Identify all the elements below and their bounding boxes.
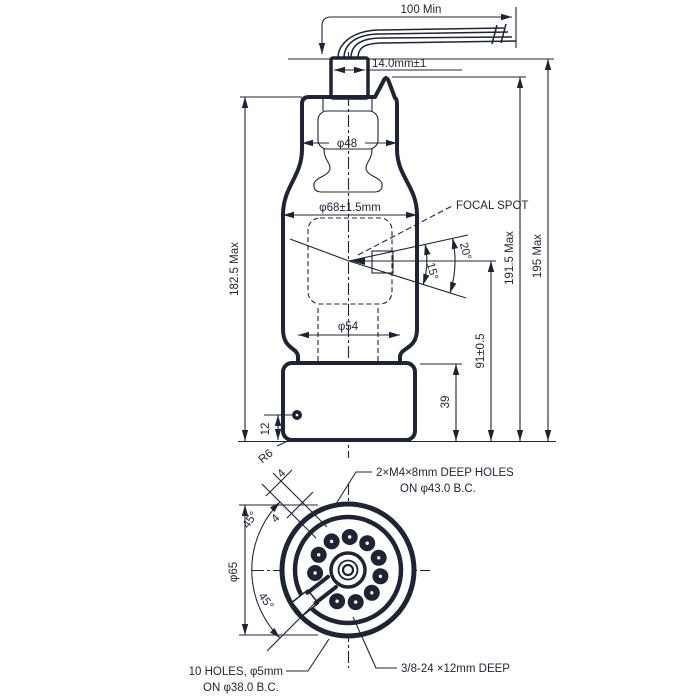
dim-focal-to-base: 91±0.5 xyxy=(475,333,487,368)
dim-tip-height: 191.5 Max xyxy=(504,231,516,285)
note-center-thread: 3/8-24 ×12mm DEEP xyxy=(401,663,510,675)
xray-beam-lower xyxy=(349,261,466,298)
dim-overall-height: 195 Max xyxy=(532,234,544,278)
dim-bulb-diameter: φ68±1.5mm xyxy=(319,202,381,214)
cathode-cap xyxy=(331,58,368,98)
leader-pin-holes xyxy=(286,639,329,671)
xray-tube-drawing: 100 Min 14.0mm±1 φ48 φ68±1.5mm 20° 15° F… xyxy=(0,0,700,700)
arc-beam-angle xyxy=(450,238,455,293)
base-hole-center xyxy=(296,414,299,417)
cable-leads xyxy=(338,24,516,58)
dim-lower-diameter: φ54 xyxy=(338,321,359,333)
technical-drawing: 100 Min 14.0mm±1 φ48 φ68±1.5mm 20° 15° F… xyxy=(0,0,700,700)
dim-beam-angle: 20° xyxy=(457,241,473,261)
pin-hole-center xyxy=(317,553,320,556)
note-pin-holes-line2: ON φ38.0 B.C. xyxy=(203,682,279,694)
pin-hole-center xyxy=(313,571,316,574)
pin-hole-center xyxy=(377,556,380,559)
note-m4-holes-line1: 2×M4×8mm DEEP HOLES xyxy=(376,467,514,479)
pin-hole-center xyxy=(366,542,369,545)
pin-hole-center xyxy=(379,575,382,578)
dim-flange-diameter: φ65 xyxy=(228,562,240,582)
dim-angle-upper: 45° xyxy=(241,510,261,531)
dim-hole-offset: 12 xyxy=(260,423,272,436)
xray-beam-upper xyxy=(349,235,468,261)
note-m4-holes-line2: ON φ43.0 B.C. xyxy=(400,483,476,495)
electron-beam-line xyxy=(290,239,349,261)
center-boss-ring xyxy=(331,553,365,587)
pin-hole-center xyxy=(370,591,373,594)
dim-corner-radius: R6 xyxy=(257,447,276,466)
dim-envelope-height: 182.5 Max xyxy=(229,242,241,296)
dim-angle-lower: 45° xyxy=(256,591,276,612)
pin-hole-center xyxy=(335,600,338,603)
dim-cable-length: 100 Min xyxy=(401,4,442,16)
pin-hole-center xyxy=(348,535,351,538)
dim-base-height: 39 xyxy=(440,396,452,409)
label-focal-spot: FOCAL SPOT xyxy=(456,200,528,212)
leader-corner-radius xyxy=(277,439,292,446)
note-pin-holes-line1: 10 HOLES, φ5mm xyxy=(189,666,283,678)
dim-key-width-b: 4 xyxy=(269,512,282,525)
base-housing xyxy=(283,363,415,440)
dim-cap-width: 14.0mm±1 xyxy=(372,58,426,70)
dim-key-width-a: 4 xyxy=(275,467,288,480)
pin-hole-center xyxy=(330,540,333,543)
dim-target-angle: 15° xyxy=(424,261,440,281)
dim-neck-diameter: φ48 xyxy=(337,138,357,150)
pin-hole-center xyxy=(354,600,357,603)
dim-line-cable-length xyxy=(322,17,512,54)
